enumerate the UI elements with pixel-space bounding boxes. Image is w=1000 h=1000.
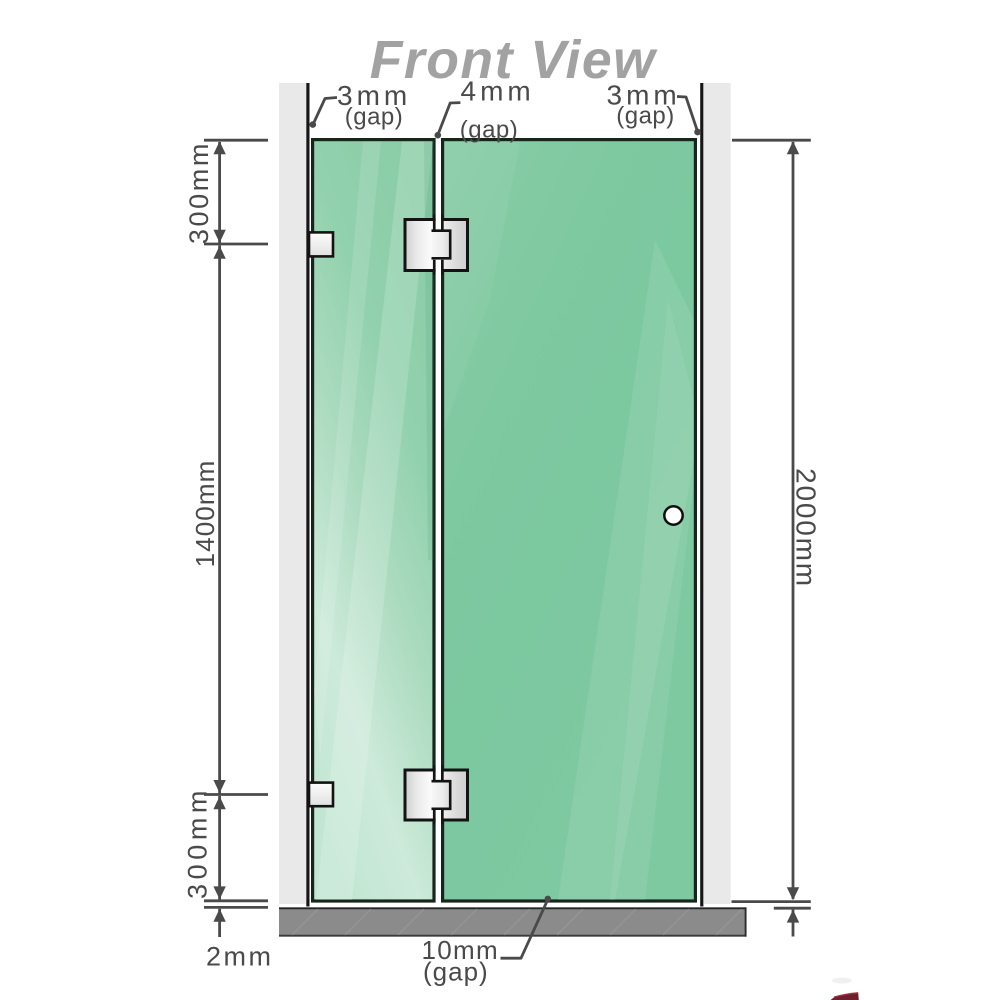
svg-text:(gap): (gap)	[460, 117, 519, 144]
svg-text:2mm: 2mm	[206, 942, 274, 972]
svg-text:(gap): (gap)	[616, 103, 675, 130]
svg-text:(gap): (gap)	[345, 104, 404, 131]
svg-text:1400mm: 1400mm	[190, 460, 220, 568]
svg-text:300mm: 300mm	[183, 786, 213, 899]
svg-text:4mm: 4mm	[461, 76, 535, 107]
svg-text:2000mm: 2000mm	[791, 468, 822, 588]
svg-text:300mm: 300mm	[184, 141, 214, 244]
svg-text:(gap): (gap)	[423, 957, 489, 987]
